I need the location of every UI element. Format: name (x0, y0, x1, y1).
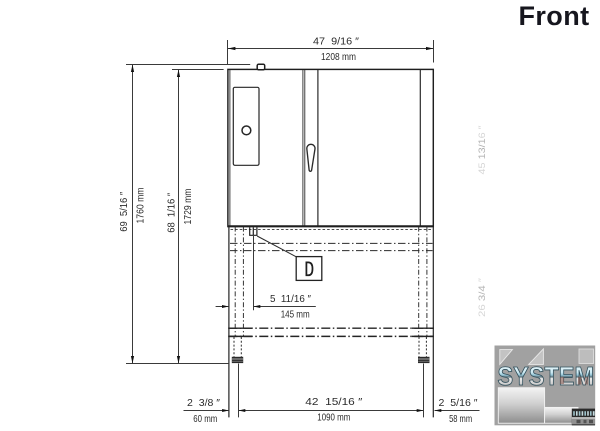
svg-text:1760 mm: 1760 mm (135, 187, 147, 223)
svg-text:47 9/16 ″: 47 9/16 ″ (313, 36, 359, 48)
svg-text:Front: Front (519, 1, 590, 31)
svg-text:SYSTEM: SYSTEM (498, 361, 595, 391)
svg-text:1729 mm: 1729 mm (182, 188, 194, 224)
svg-text:26 3/4 ″: 26 3/4 ″ (477, 277, 487, 317)
svg-text:1090 mm: 1090 mm (317, 411, 350, 423)
svg-text:42 15/16 ″: 42 15/16 ″ (305, 396, 362, 408)
svg-text:2 5/16 ″: 2 5/16 ″ (439, 397, 478, 409)
svg-text:45 13/16 ″: 45 13/16 ″ (477, 125, 487, 175)
svg-text:2 3/8 ″: 2 3/8 ″ (187, 397, 220, 409)
svg-text:5 11/16 ″: 5 11/16 ″ (270, 293, 311, 305)
svg-text:60 mm: 60 mm (193, 413, 217, 425)
svg-text:1208 mm: 1208 mm (321, 51, 356, 63)
svg-text:69 5/16 ″: 69 5/16 ″ (118, 192, 130, 232)
svg-text:68 1/16 ″: 68 1/16 ″ (166, 193, 178, 233)
svg-text:58 mm: 58 mm (449, 413, 472, 425)
svg-text:145 mm: 145 mm (281, 308, 310, 320)
